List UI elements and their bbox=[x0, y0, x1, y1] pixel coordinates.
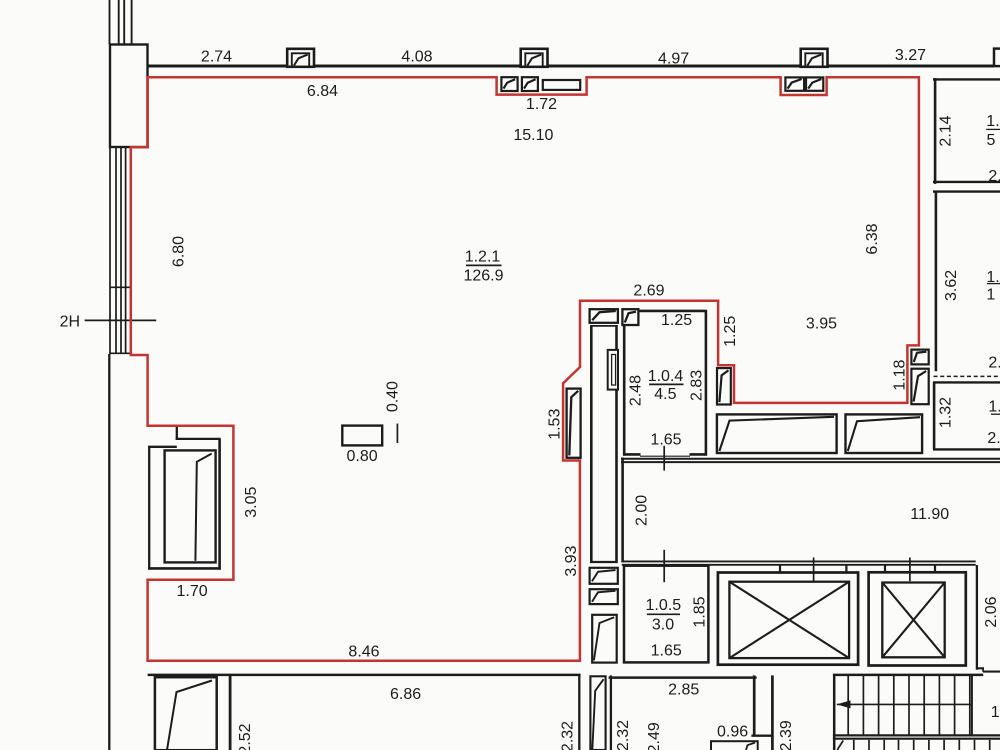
svg-text:0.96: 0.96 bbox=[717, 724, 748, 741]
svg-text:2.32: 2.32 bbox=[615, 720, 632, 750]
svg-text:1.0.4: 1.0.4 bbox=[648, 368, 684, 385]
svg-text:2.00: 2.00 bbox=[634, 495, 651, 526]
svg-text:11.90: 11.90 bbox=[910, 506, 949, 523]
svg-text:4.5: 4.5 bbox=[654, 386, 676, 403]
svg-text:2.85: 2.85 bbox=[668, 681, 699, 698]
svg-text:3.27: 3.27 bbox=[895, 47, 926, 64]
svg-text:2.69: 2.69 bbox=[633, 282, 664, 299]
svg-text:2.14: 2.14 bbox=[937, 115, 954, 146]
svg-text:1.0: 1.0 bbox=[986, 113, 1000, 130]
svg-text:1.65: 1.65 bbox=[650, 432, 681, 449]
svg-text:8.46: 8.46 bbox=[348, 643, 379, 660]
svg-text:1.53: 1.53 bbox=[546, 409, 563, 440]
svg-text:1.65: 1.65 bbox=[651, 643, 682, 660]
svg-text:2.83: 2.83 bbox=[688, 370, 705, 401]
svg-text:2.32: 2.32 bbox=[560, 721, 577, 750]
svg-text:5: 5 bbox=[987, 132, 996, 149]
svg-text:1.25: 1.25 bbox=[722, 316, 739, 347]
svg-text:126.9: 126.9 bbox=[463, 268, 503, 285]
svg-text:2H: 2H bbox=[60, 313, 80, 330]
svg-text:3.62: 3.62 bbox=[943, 270, 960, 301]
svg-text:2.74: 2.74 bbox=[201, 48, 232, 65]
svg-text:1: 1 bbox=[986, 286, 995, 303]
svg-text:3.05: 3.05 bbox=[243, 487, 260, 518]
svg-text:1.18: 1.18 bbox=[892, 359, 909, 390]
svg-text:2.52: 2.52 bbox=[237, 723, 254, 750]
svg-text:2.06: 2.06 bbox=[983, 596, 1000, 627]
svg-text:1.0.5: 1.0.5 bbox=[646, 597, 682, 614]
svg-text:4.97: 4.97 bbox=[658, 51, 689, 68]
svg-text:0.40: 0.40 bbox=[384, 381, 401, 412]
svg-text:4.08: 4.08 bbox=[401, 48, 432, 65]
svg-text:2.39: 2.39 bbox=[778, 720, 795, 750]
svg-text:0.80: 0.80 bbox=[347, 448, 378, 465]
svg-text:1.2.1: 1.2.1 bbox=[465, 248, 501, 265]
svg-text:1.: 1. bbox=[988, 398, 1000, 415]
svg-text:6.86: 6.86 bbox=[390, 686, 421, 703]
svg-text:15.10: 15.10 bbox=[513, 127, 553, 144]
svg-text:1.25: 1.25 bbox=[661, 312, 692, 329]
svg-text:2.: 2. bbox=[988, 168, 1000, 185]
svg-text:6.38: 6.38 bbox=[864, 223, 881, 254]
svg-text:6.84: 6.84 bbox=[307, 83, 338, 100]
svg-text:2.49: 2.49 bbox=[646, 722, 663, 750]
svg-text:3.0: 3.0 bbox=[652, 616, 674, 633]
svg-text:6.80: 6.80 bbox=[170, 236, 187, 267]
svg-text:1.72: 1.72 bbox=[526, 96, 557, 113]
svg-text:1.32: 1.32 bbox=[938, 397, 955, 428]
svg-text:3.93: 3.93 bbox=[563, 545, 580, 576]
svg-text:2.48: 2.48 bbox=[628, 375, 645, 406]
svg-text:2.: 2. bbox=[987, 430, 1000, 447]
svg-text:2.: 2. bbox=[988, 355, 1000, 372]
svg-text:1.70: 1.70 bbox=[177, 583, 208, 600]
svg-text:1.85: 1.85 bbox=[692, 596, 709, 627]
svg-text:3.95: 3.95 bbox=[806, 315, 837, 332]
svg-text:1: 1 bbox=[991, 704, 1000, 721]
